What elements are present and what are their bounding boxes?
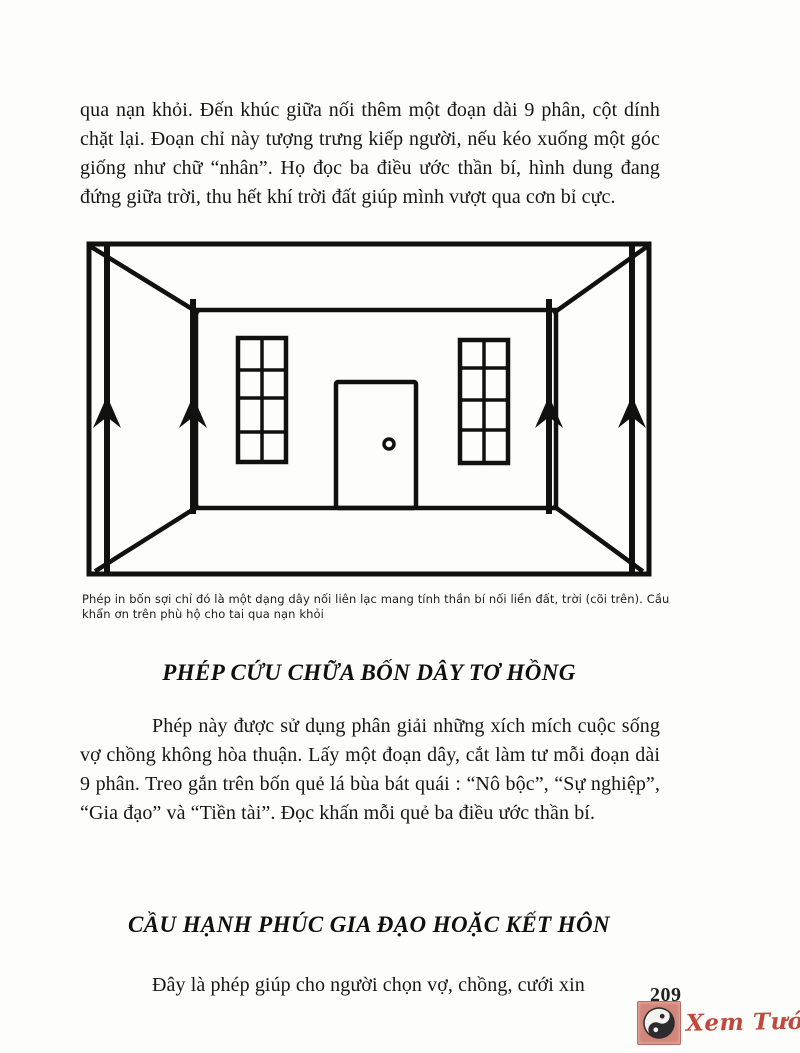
room-illustration — [85, 240, 660, 578]
up-arrow-icon — [93, 396, 646, 428]
section-heading-2: CẦU HẠNH PHÚC GIA ĐẠO HOẶC KẾT HÔN — [80, 912, 658, 938]
figure-caption: Phép in bốn sợi chỉ đó là một dạng dây n… — [82, 592, 674, 622]
watermark-text: Xem Tướng.net — [686, 1006, 800, 1037]
yin-yang-icon — [641, 1005, 677, 1041]
scanned-book-page: qua nạn khỏi. Đến khúc giữa nối thêm một… — [0, 0, 800, 1053]
paragraph-top: qua nạn khỏi. Đến khúc giữa nối thêm một… — [80, 96, 660, 212]
watermark-logo — [637, 1001, 681, 1045]
paragraph-bottom: Đây là phép giúp cho người chọn vợ, chồn… — [80, 971, 660, 1000]
watermark: Xem Tướng.net — [637, 1001, 800, 1049]
section-heading-1: PHÉP CỨU CHỮA BỐN DÂY TƠ HỒNG — [80, 660, 658, 686]
page-number: 209 — [650, 984, 682, 1007]
figure-illustration — [85, 240, 660, 578]
paragraph-middle: Phép này được sử dụng phân giải những xí… — [80, 712, 660, 828]
